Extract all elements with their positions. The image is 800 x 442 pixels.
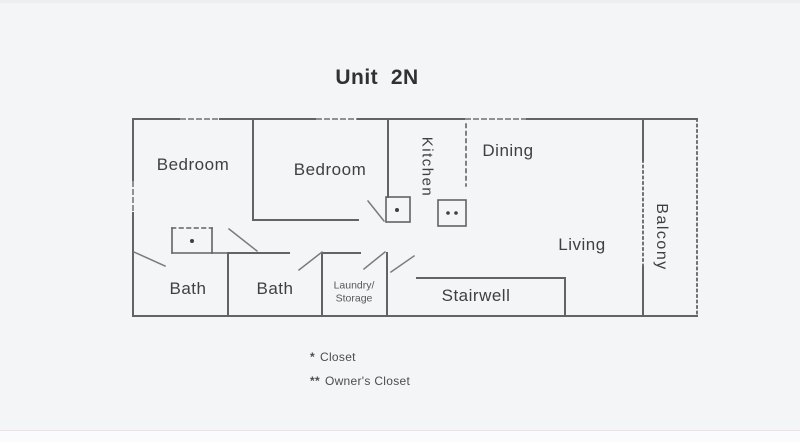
closet-marker-dot [190,239,194,243]
room-label-bedroom2: Bedroom [294,160,366,180]
closet-boxes [172,197,466,253]
legend-item-closet: * Closet [310,350,356,364]
exterior-walls [133,119,697,316]
floorplan-scan-page: Unit 2N Bedroom Bedroom Kitchen Dining L… [0,0,800,442]
laundry-door-swing [364,252,385,269]
bath1-door-swing [134,252,165,266]
legend-label-closet: Closet [320,350,356,364]
bath2-door-swing [299,252,322,270]
room-label-bedroom1: Bedroom [157,155,229,175]
laundry-label-line1: Laundry/ [334,279,375,292]
bedroom2-door-swing [368,201,384,221]
hall-door-swing [229,229,257,251]
plan-title: Unit 2N [335,66,418,90]
room-label-laundry-storage: Laundry/ Storage [334,279,375,304]
room-label-dining: Dining [482,141,533,161]
legend-marker-owners-closet: ** [310,374,320,388]
room-label-living: Living [558,235,605,255]
owners-closet-marker-dot [454,211,458,215]
room-label-balcony: Balcony [652,203,670,270]
laundry-label-line2: Storage [334,292,375,305]
bedroom1-closet-box [172,228,212,253]
kitchen-closet-box [386,197,410,222]
room-label-bath1: Bath [170,279,207,299]
legend-label-owners-closet: Owner's Closet [325,374,410,388]
room-label-bath2: Bath [257,279,294,299]
closet-marker-dot [395,208,399,212]
owners-closet-marker-dot [446,211,450,215]
legend-marker-closet: * [310,350,315,364]
room-label-kitchen: Kitchen [419,137,436,198]
door-swings [134,201,414,272]
scan-artifact-bottom [0,430,800,442]
owners-closet-box [438,200,466,226]
stairhall-door-swing [391,256,414,272]
room-label-stairwell: Stairwell [442,286,511,306]
legend-item-owners-closet: ** Owner's Closet [310,374,410,388]
